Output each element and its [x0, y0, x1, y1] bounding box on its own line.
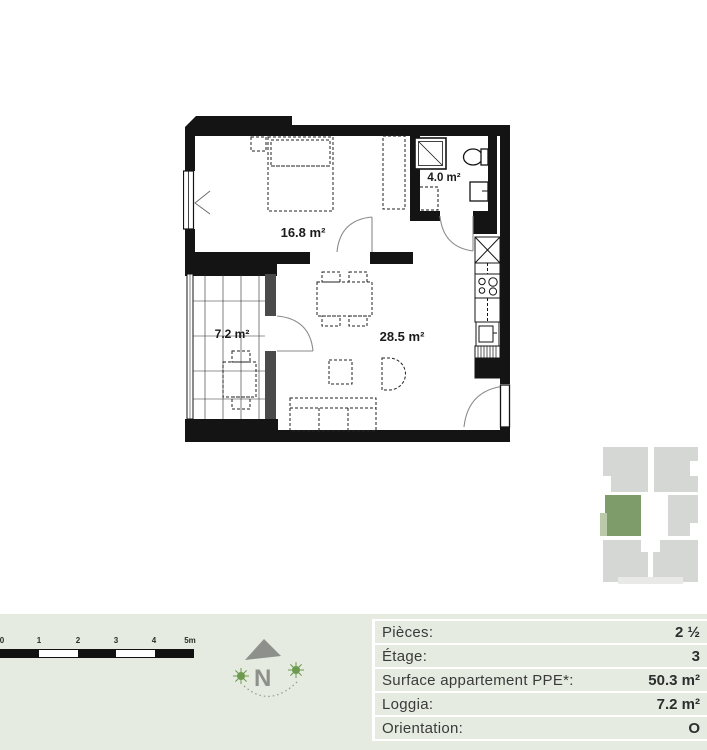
scale-label-4: 4: [152, 636, 156, 645]
scale-label-3: 3: [114, 636, 118, 645]
north-label: N: [254, 665, 271, 692]
details-row-surface: Surface appartement PPE*: 50.3 m²: [375, 669, 707, 693]
scale-bar-segments: [0, 649, 194, 658]
furniture-icons: [223, 136, 406, 431]
details-value: 2 ½: [675, 624, 700, 641]
sun-icon: [288, 662, 304, 678]
living-area-label: 28.5 m²: [380, 329, 425, 344]
window-icon: [184, 171, 211, 229]
scale-label-2: 2: [76, 636, 80, 645]
scale-segment: [1, 650, 39, 657]
north-arrow-icon: [245, 639, 281, 660]
details-value: 50.3 m²: [648, 672, 700, 689]
details-row-etage: Étage: 3: [375, 645, 707, 669]
details-value: O: [688, 720, 700, 737]
details-row-orientation: Orientation: O: [375, 717, 707, 741]
details-label: Pièces:: [382, 624, 433, 641]
kitchen-icons: [475, 237, 500, 378]
loggia-area-label: 7.2 m²: [215, 327, 250, 341]
details-label: Surface appartement PPE*:: [382, 672, 574, 689]
minimap-highlighted-unit: [605, 495, 641, 536]
details-row-pieces: Pièces: 2 ½: [375, 621, 707, 645]
floorplan: 16.8 m² 4.0 m² 7.2 m² 28.5 m²: [183, 111, 513, 446]
scale-labels: 0 1 2 3 4 5m: [0, 636, 200, 648]
details-value: 7.2 m²: [657, 696, 700, 713]
scale-label-1: 1: [37, 636, 41, 645]
scale-label-0: 0: [0, 636, 4, 645]
north-compass: N: [232, 634, 322, 712]
minimap-loggia-strip: [600, 513, 607, 536]
scale-segment: [116, 650, 154, 657]
bedroom-area-label: 16.8 m²: [281, 225, 326, 240]
entrance-door-leaf: [501, 385, 510, 427]
details-label: Étage:: [382, 648, 427, 665]
apartment-details-table: Pièces: 2 ½ Étage: 3 Surface appartement…: [372, 619, 707, 741]
scale-segment: [78, 650, 116, 657]
scale-segment: [39, 650, 77, 657]
minimap-bottom-strip: [618, 577, 683, 584]
floorplan-page: 16.8 m² 4.0 m² 7.2 m² 28.5 m² 0 1: [0, 0, 707, 750]
sun-icon: [233, 668, 249, 684]
details-label: Orientation:: [382, 720, 463, 737]
scale-bar: 0 1 2 3 4 5m: [0, 636, 200, 662]
building-position-minimap: [593, 443, 707, 588]
walls: [185, 116, 510, 442]
footer-band: 0 1 2 3 4 5m N: [0, 614, 707, 750]
details-value: 3: [692, 648, 700, 665]
details-label: Loggia:: [382, 696, 433, 713]
scale-segment: [155, 650, 193, 657]
details-row-loggia: Loggia: 7.2 m²: [375, 693, 707, 717]
bathroom-area-label: 4.0 m²: [427, 172, 460, 184]
doors: [277, 216, 505, 427]
scale-label-5: 5m: [184, 636, 196, 645]
